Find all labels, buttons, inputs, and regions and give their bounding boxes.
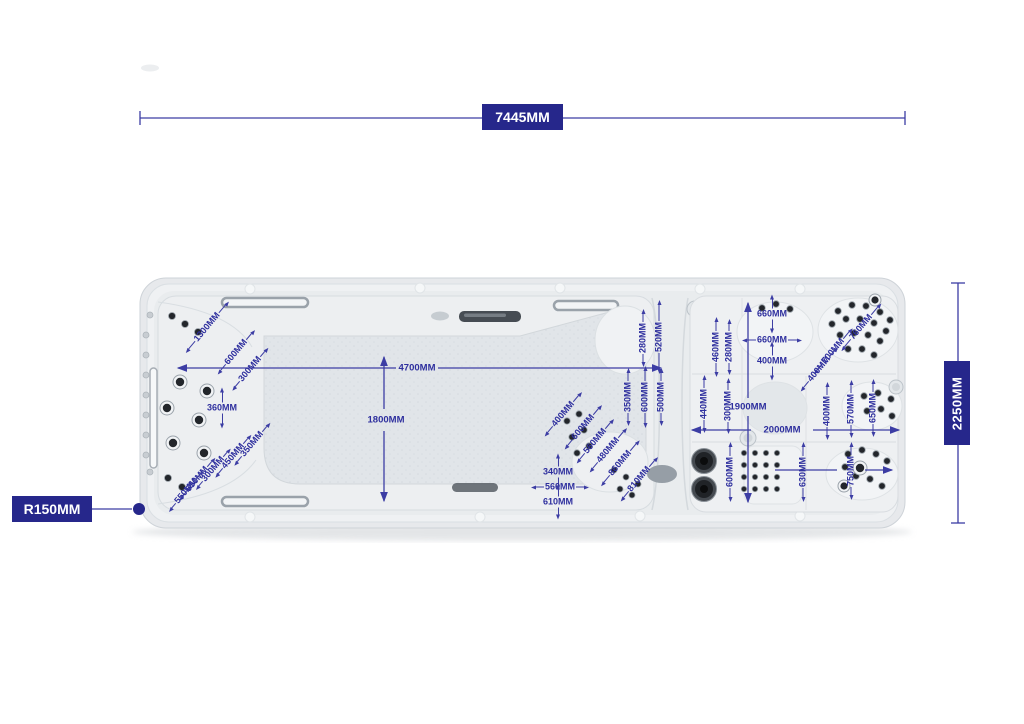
- jet: [160, 401, 174, 415]
- swim-spa-dimension-diagram: 1300MM600MM300MM360MM350MM450MM300MM650M…: [0, 0, 1024, 724]
- jet: [166, 436, 180, 450]
- background-smudge: [141, 65, 159, 72]
- overall-width-text: 2250MM: [950, 376, 965, 430]
- overall-length-label: 7445MM: [482, 104, 563, 130]
- speaker: [692, 477, 717, 502]
- jet: [173, 375, 187, 389]
- spa-seating-section: [690, 294, 903, 512]
- speaker: [692, 449, 717, 474]
- overall-width-label: 2250MM: [944, 361, 970, 445]
- jet: [200, 384, 214, 398]
- jet: [197, 446, 211, 460]
- corner-radius-label: R150MM: [12, 496, 92, 522]
- jet: [192, 413, 206, 427]
- radius-leader-dot: [133, 503, 145, 515]
